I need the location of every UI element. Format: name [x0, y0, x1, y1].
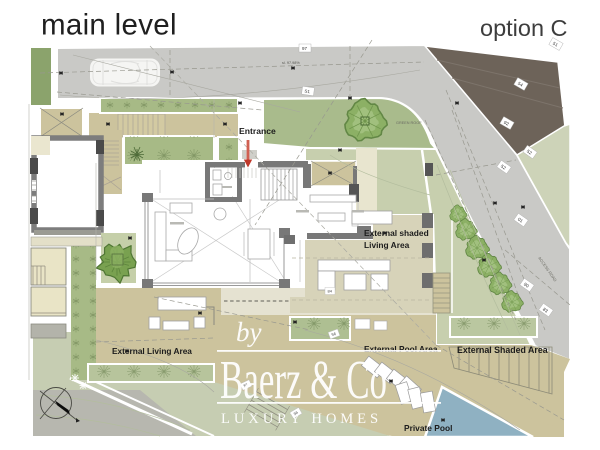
- svg-text:84: 84: [328, 289, 333, 294]
- svg-text:by: by: [236, 317, 262, 347]
- svg-text:main level: main level: [41, 9, 177, 42]
- svg-text:Private Pool: Private Pool: [404, 423, 452, 433]
- svg-text:External Living Area: External Living Area: [112, 346, 192, 356]
- svg-text:External shaded: External shaded: [364, 228, 429, 238]
- svg-text:GREEN ROOF: GREEN ROOF: [396, 121, 422, 125]
- svg-text:External Shaded Area: External Shaded Area: [457, 345, 548, 355]
- svg-text:LUXURY HOMES: LUXURY HOMES: [221, 411, 382, 427]
- svg-text:Living Area: Living Area: [364, 240, 410, 250]
- svg-text:sl. 97.98%: sl. 97.98%: [282, 61, 300, 65]
- svg-text:Baerz & Co: Baerz & Co: [220, 349, 387, 410]
- svg-text:97: 97: [302, 46, 308, 51]
- svg-text:Entrance: Entrance: [239, 126, 276, 136]
- svg-text:option C: option C: [480, 15, 568, 41]
